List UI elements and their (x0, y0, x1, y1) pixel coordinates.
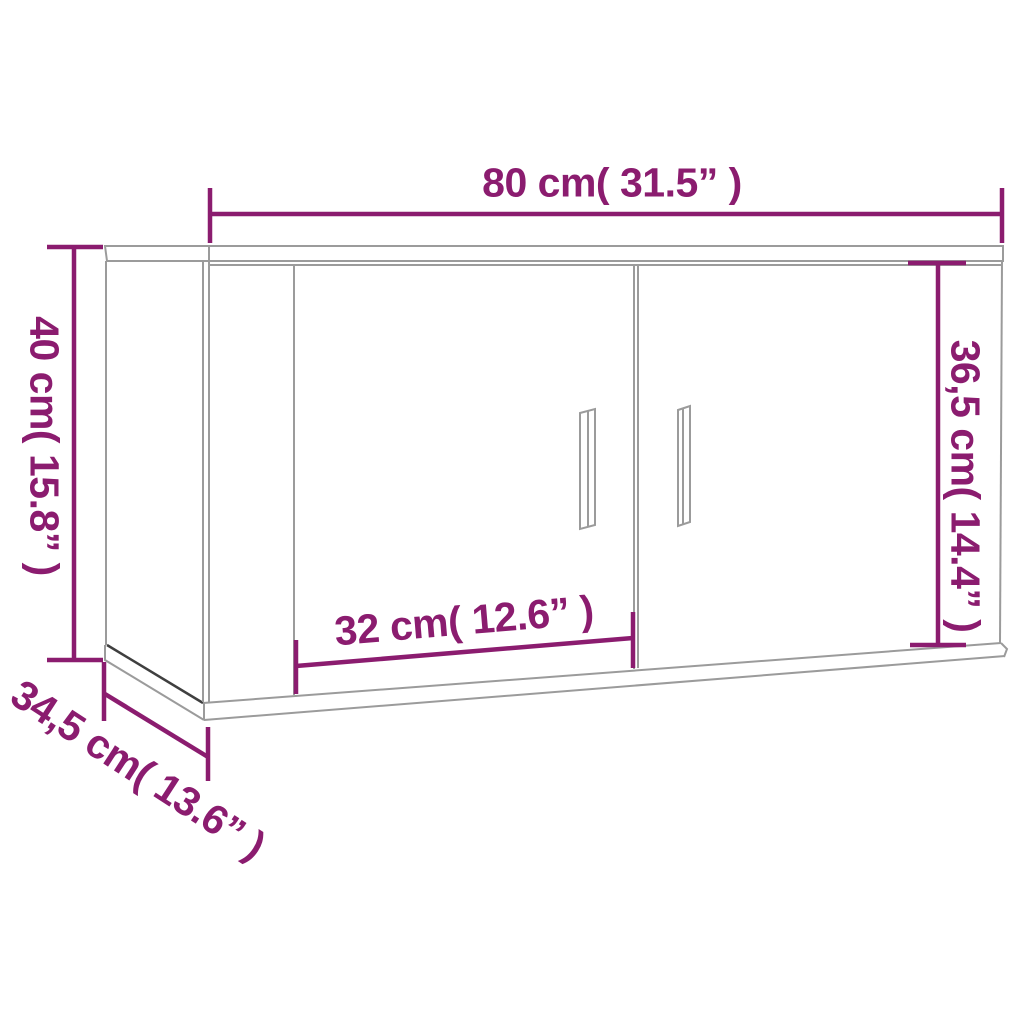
bottom-panel-right-cap (1001, 643, 1007, 657)
front-bottom-edge (203, 643, 1001, 703)
left-door-handle (580, 409, 595, 529)
top-panel (105, 246, 1003, 261)
door-gap (634, 265, 638, 669)
bottom-panel (105, 643, 1007, 720)
height-dimension-label: 40 cm( 15.8” ) (21, 316, 68, 576)
cabinet-line-drawing (0, 0, 1024, 1024)
front-right-edge (1000, 261, 1002, 643)
right-door-handle (678, 406, 690, 526)
cabinet (105, 246, 1007, 720)
front-frame (203, 247, 1002, 703)
dimension-lines (47, 188, 1002, 781)
width-dimension-label: 80 cm( 31.5” ) (482, 160, 742, 207)
bottom-panel-left-edge (105, 645, 204, 720)
side-panel-bottom-edge (107, 645, 203, 703)
door-height-dimension-label: 36,5 cm( 14.4” ) (942, 340, 989, 633)
dimension-diagram: 80 cm( 31.5” ) 40 cm( 15.8” ) 36,5 cm( 1… (0, 0, 1024, 1024)
